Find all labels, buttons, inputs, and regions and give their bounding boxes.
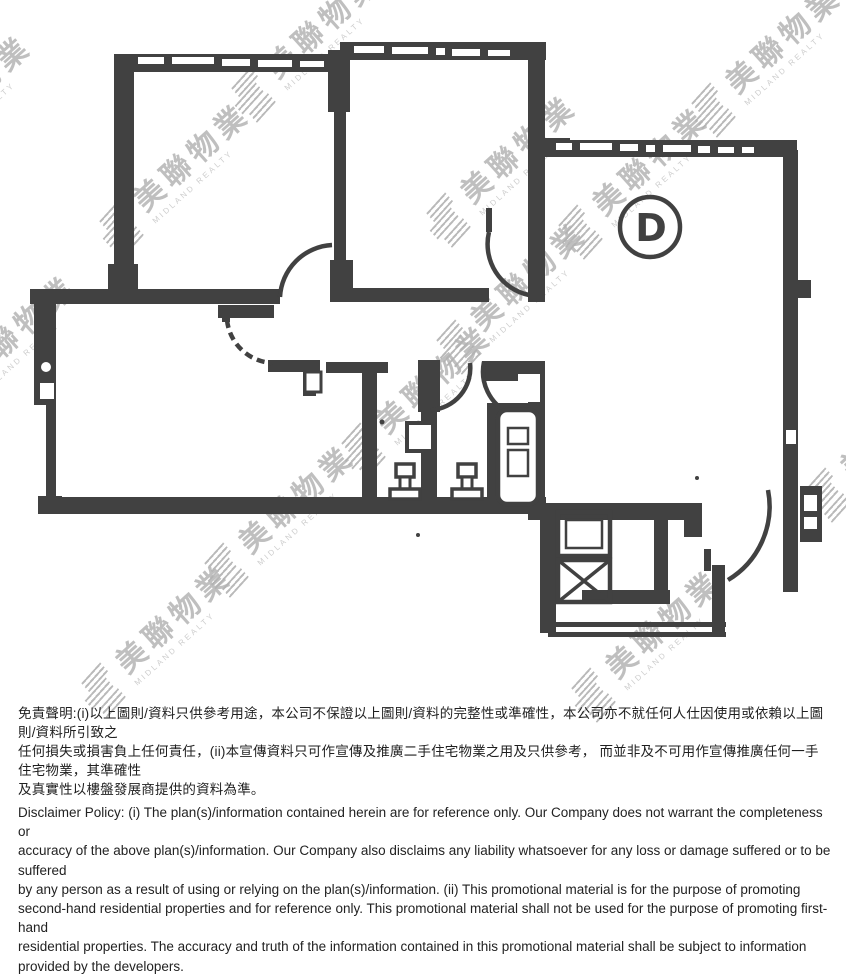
floorplan-page: { "plan": { "room_label": "D" }, "waterm… bbox=[0, 0, 846, 886]
disclaimer-en-line: second-hand residential properties and f… bbox=[18, 899, 832, 937]
washbasin bbox=[407, 423, 433, 451]
kitchen-door-arc bbox=[728, 490, 770, 580]
disclaimer-block: 免責聲明:(i)以上圖則/資料只供參考用途，本公司不保證以上圖則/資料的完整性或… bbox=[18, 704, 832, 976]
bathtub-detail bbox=[508, 428, 528, 444]
disclaimer-en-line: by any person as a result of using or re… bbox=[18, 880, 832, 899]
bedroom2-door-arc bbox=[488, 232, 529, 295]
disclaimer-en-line: residential properties. The accuracy and… bbox=[18, 937, 832, 956]
disclaimer-zh-line: 免責聲明:(i)以上圖則/資料只供參考用途，本公司不保證以上圖則/資料的完整性或… bbox=[18, 704, 832, 742]
disclaimer-zh-line: 及真實性以樓盤發展商提供的資料為準。 bbox=[18, 780, 832, 799]
disclaimer-en-line: provided by the developers. bbox=[18, 957, 832, 976]
disclaimer-en-line: accuracy of the above plan(s)/informatio… bbox=[18, 841, 832, 879]
toilet bbox=[396, 464, 414, 477]
bathtub-detail bbox=[508, 450, 528, 476]
bedroom1-door-arc bbox=[280, 245, 332, 297]
washbasin-small bbox=[305, 372, 321, 392]
flat-label: D bbox=[620, 197, 680, 257]
toilet bbox=[458, 464, 476, 477]
walls bbox=[30, 42, 822, 637]
flat-label-letter: D bbox=[635, 206, 667, 250]
disclaimer-zh-line: 任何損失或損害負上任何責任，(ii)本宣傳資料只可作宣傳及推廣二手住宅物業之用及… bbox=[18, 742, 832, 780]
hallway-door-arc bbox=[227, 320, 273, 363]
floor-plan: D bbox=[0, 0, 846, 680]
disclaimer-en-block: Disclaimer Policy: (i) The plan(s)/infor… bbox=[18, 803, 832, 976]
disclaimer-en-line: Disclaimer Policy: (i) The plan(s)/infor… bbox=[18, 803, 832, 841]
kitchen-fixtures bbox=[558, 512, 610, 602]
